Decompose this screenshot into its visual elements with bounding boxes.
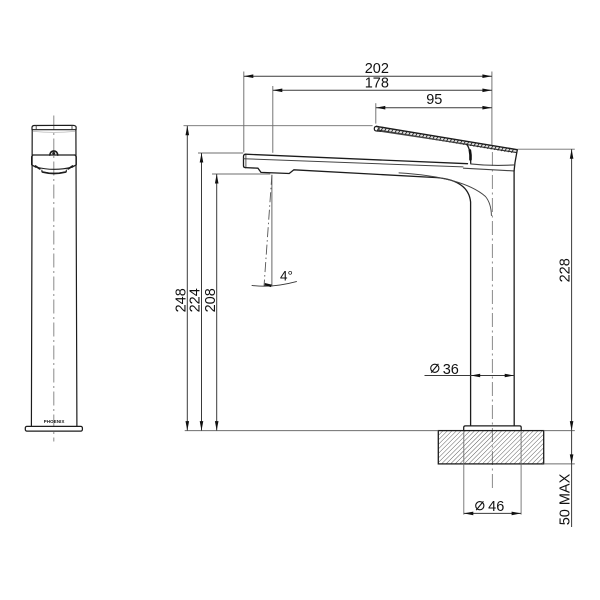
svg-text:PHOENIX: PHOENIX [44, 419, 65, 424]
svg-text:36: 36 [443, 362, 459, 378]
svg-text:202: 202 [365, 61, 389, 77]
svg-text:224: 224 [188, 288, 204, 312]
svg-text:228: 228 [557, 258, 573, 282]
svg-text:178: 178 [365, 76, 389, 92]
svg-text:95: 95 [426, 92, 442, 108]
svg-text:46: 46 [488, 499, 504, 515]
svg-text:50 MAX: 50 MAX [557, 473, 573, 525]
svg-text:208: 208 [203, 288, 219, 312]
svg-text:4°: 4° [280, 269, 293, 284]
